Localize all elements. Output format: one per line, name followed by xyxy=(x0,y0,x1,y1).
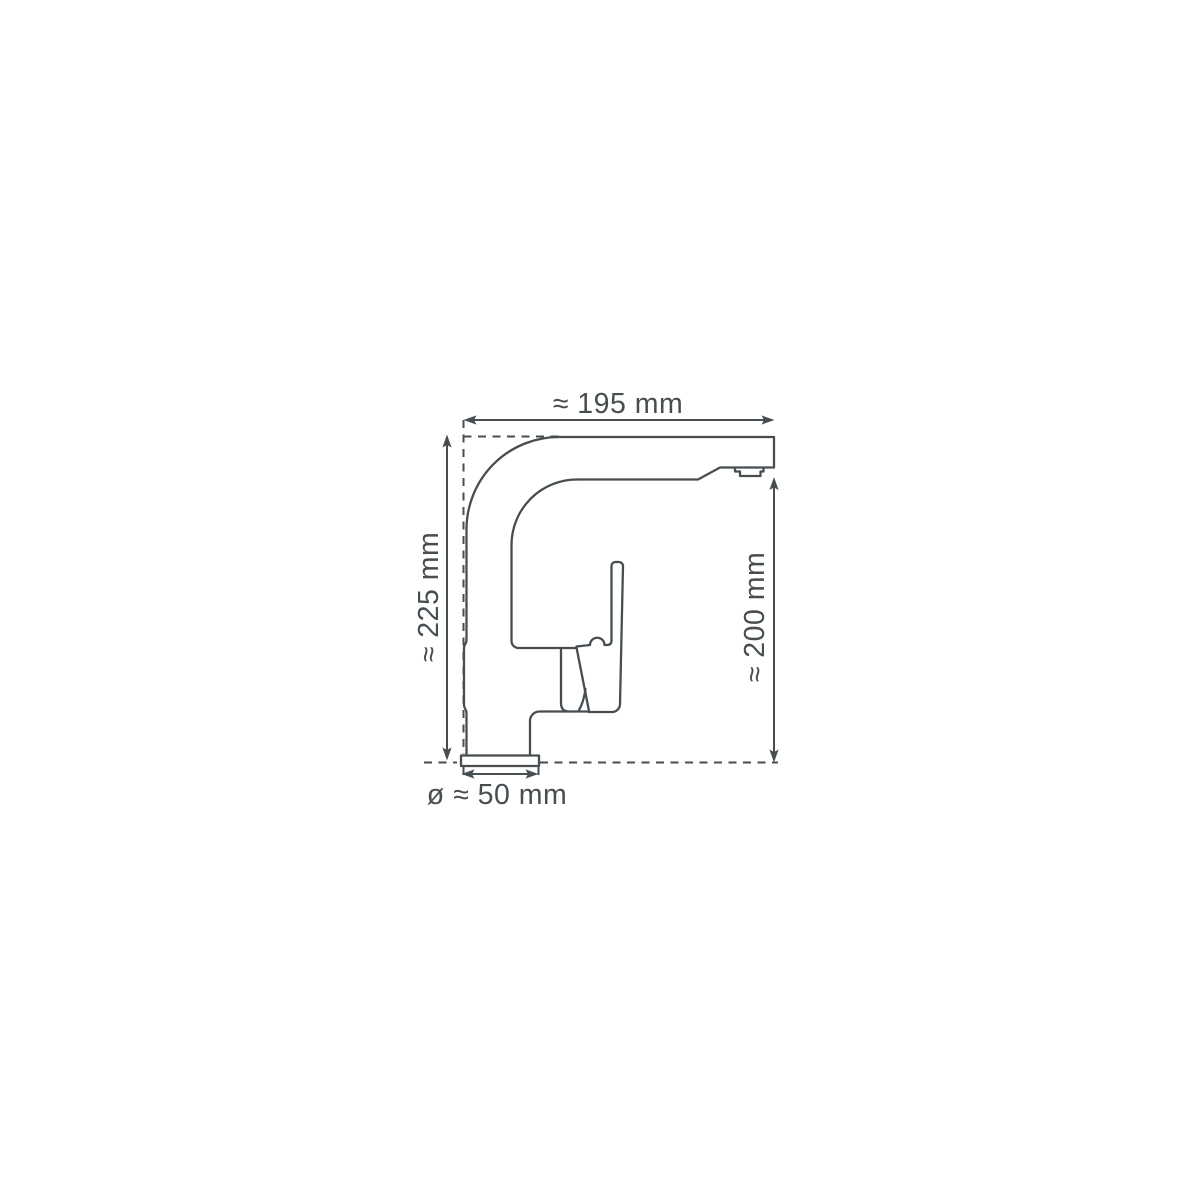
faucet-outline xyxy=(461,437,774,766)
body-right-edge-line xyxy=(561,649,569,712)
aerator-outlet-path xyxy=(735,468,764,476)
faucet-technical-drawing: ≈ 195 mm ≈ 225 mm ≈ 200 mm ø ≈ 50 mm xyxy=(0,0,1200,1200)
base-column-ledge-path xyxy=(530,712,589,756)
spout-reach-label: ≈ 195 mm xyxy=(553,388,684,420)
total-height-label: ≈ 225 mm xyxy=(413,532,445,663)
reference-dashed-lines xyxy=(424,420,778,778)
base-diameter-label: ø ≈ 50 mm xyxy=(427,779,568,811)
faucet-lever-handle-path xyxy=(577,562,624,712)
handle-skirt-seam-line xyxy=(579,689,586,711)
spout-height-label: ≈ 200 mm xyxy=(739,552,771,683)
base-flange xyxy=(461,756,539,767)
faucet-dimension-diagram-page: ≈ 195 mm ≈ 225 mm ≈ 200 mm ø ≈ 50 mm xyxy=(0,0,1200,1200)
